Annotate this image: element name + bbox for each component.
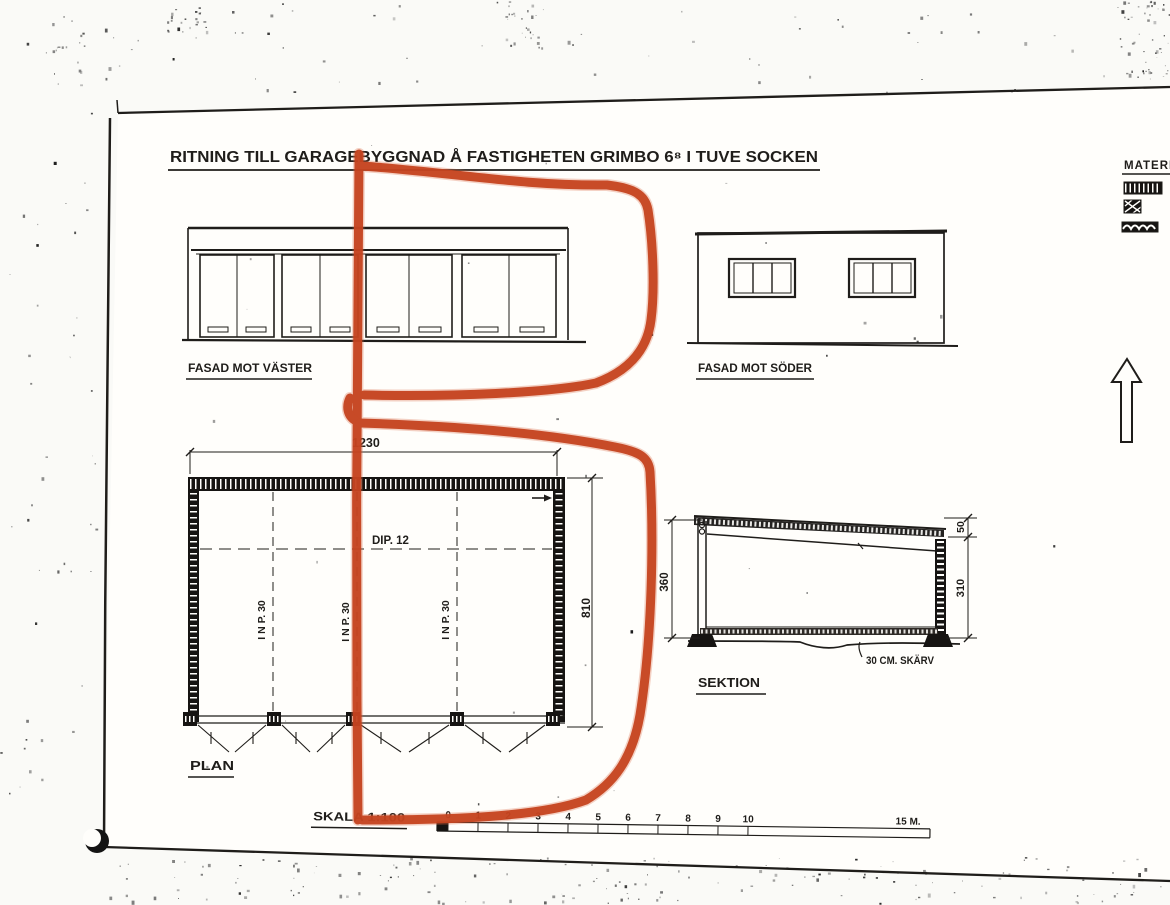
- plan-column-label: I N P. 30: [256, 600, 268, 640]
- plan-beam-label: DIP. 12: [372, 535, 409, 547]
- plan-column-label: I N P. 30: [440, 600, 452, 640]
- scale-tick: 5: [595, 812, 601, 823]
- scale-end-label: 15 M.: [896, 816, 921, 827]
- plan-dim-depth: 810: [579, 598, 593, 618]
- scale-tick: 10: [742, 814, 754, 825]
- legend-swatch-crosshatch: [1124, 200, 1141, 213]
- scale-tick: 9: [715, 814, 721, 825]
- section-dim-height: 360: [659, 572, 671, 591]
- section-dim-clear: 310: [955, 579, 967, 597]
- plan-column-label: I N P. 30: [340, 602, 352, 642]
- scale-tick: 6: [625, 813, 631, 824]
- section-dim-parapet: 50: [955, 521, 967, 533]
- legend-swatch-scallop: [1122, 222, 1158, 232]
- footing: [687, 634, 717, 647]
- facade-south-label: FASAD MOT SÖDER: [698, 360, 812, 375]
- legend-title: MATERIAL: [1124, 160, 1170, 172]
- legend-swatch-striped: [1124, 182, 1162, 194]
- garage-drawing-canvas: RITNING TILL GARAGEBYGGNAD Å FASTIGHETEN…: [0, 0, 1170, 905]
- section-note: 30 CM. SKÄRV: [866, 654, 935, 667]
- facade-west-label: FASAD MOT VÄSTER: [188, 360, 312, 375]
- scale-tick: 7: [655, 813, 661, 824]
- page-title: RITNING TILL GARAGEBYGGNAD Å FASTIGHETEN…: [170, 149, 818, 166]
- plan-label: PLAN: [190, 759, 234, 773]
- scale-tick: 8: [685, 813, 691, 824]
- footing: [923, 634, 953, 647]
- scale-tick: 4: [565, 812, 571, 823]
- scanned-drawing-sheet: RITNING TILL GARAGEBYGGNAD Å FASTIGHETEN…: [0, 0, 1170, 905]
- section-label: SEKTION: [698, 676, 760, 690]
